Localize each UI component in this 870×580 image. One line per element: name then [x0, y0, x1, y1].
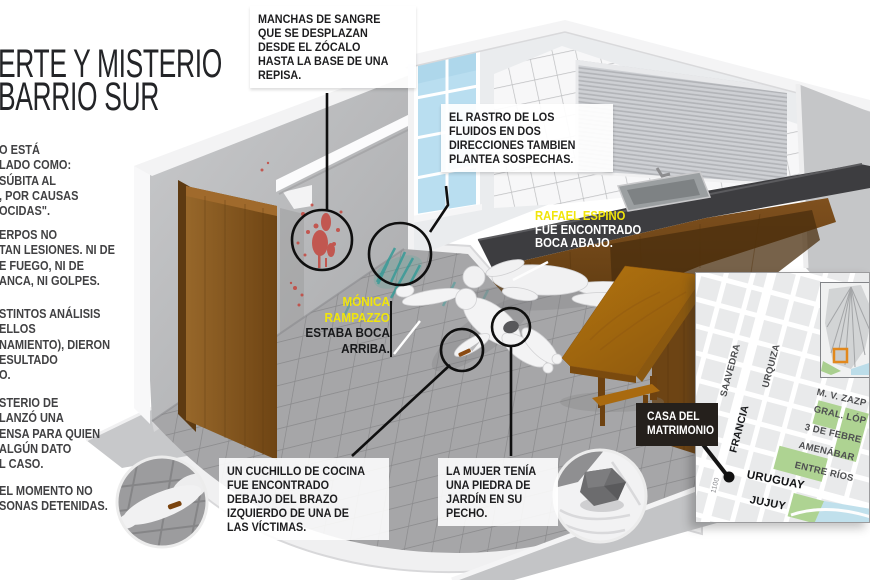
callout-stone: LA MUJER TENÍA UNA PIEDRA DE JARDÍN EN S…	[438, 458, 558, 526]
victim-name-monica-1: MÓNICA	[305, 294, 390, 310]
left-text-case-status: O ESTÁ LADO COMO: SÚBITA AL , POR CAUSAS…	[0, 143, 78, 219]
label-rafael: RAFAEL ESPINO FUE ENCONTRADO BOCA ABAJO.	[535, 210, 653, 251]
left-text-reward: STERIO DE LANZÓ UNA ENSA PARA QUIEN ALGÚ…	[0, 396, 100, 472]
callout-blood-wall: MANCHAS DE SANGRE QUE SE DESPLAZAN DESDE…	[250, 6, 416, 88]
callout-knife: UN CUCHILLO DE COCINA FUE ENCONTRADO DEB…	[219, 458, 389, 540]
location-map: SAAVEDRA URQUIZA FRANCIA 1100 M. V. ZAZP…	[695, 272, 870, 523]
victim-name-monica-2: RAMPAZZO	[305, 310, 390, 326]
headline: ERTE Y MISTERIO BARRIO SUR	[0, 48, 222, 114]
inset-location-marker	[834, 349, 847, 362]
left-text-detained: EL MOMENTO NO SONAS DETENIDAS.	[0, 484, 108, 515]
door	[178, 180, 277, 460]
left-text-analysis: STINTOS ANÁLISIS ELLOS NAMIENTO), DIERON…	[0, 307, 110, 383]
left-text-injuries: ERPOS NO TAN LESIONES. NI DE E FUEGO, NI…	[0, 228, 115, 289]
victim-name-rafael: RAFAEL ESPINO	[535, 210, 641, 224]
callout-fluids: EL RASTRO DE LOS FLUIDOS EN DOS DIRECCIO…	[441, 104, 613, 172]
city-overview-inset-map	[820, 282, 870, 378]
map-marker-label: CASA DEL MATRIMONIO	[636, 403, 718, 446]
label-monica: MÓNICA RAMPAZZO ESTABA BOCA ARRIBA.	[290, 294, 390, 356]
crime-scene-infographic: ERTE Y MISTERIO BARRIO SUR O ESTÁ LADO C…	[0, 0, 870, 580]
